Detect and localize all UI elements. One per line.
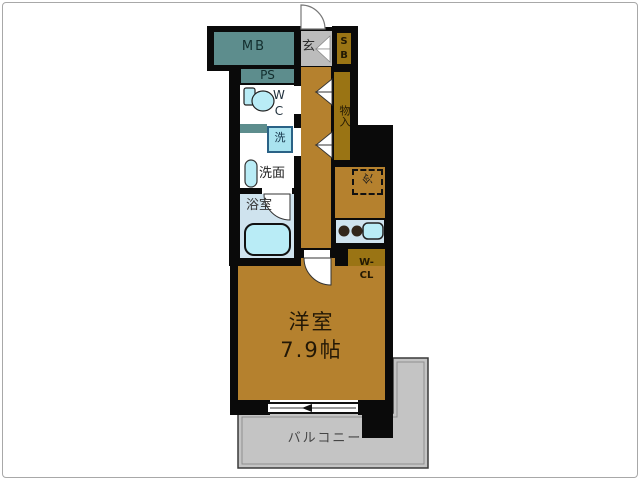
window-arrow-icon — [302, 404, 312, 412]
fixtures-layer — [0, 0, 640, 480]
toilet-bowl — [252, 91, 274, 111]
storage-door-icon — [316, 145, 332, 158]
entry-closet-door-icon — [316, 36, 330, 49]
label-fridge-text: 冷 — [362, 172, 373, 184]
bathtub — [245, 224, 290, 255]
stove-burner — [339, 226, 350, 237]
label-meter-box: MB — [214, 40, 294, 54]
label-shoe-box: S B — [337, 35, 351, 63]
label-entrance: 玄 — [302, 40, 315, 54]
sink — [245, 160, 257, 187]
label-storage: 物入 — [334, 76, 350, 156]
main-room-door-swing — [304, 258, 331, 285]
label-toilet: W C — [273, 88, 285, 119]
floor-plan-canvas: MB PS 玄 S B W C 洗 洗面 浴室 物入 冷 W- CL 洋室 7.… — [0, 0, 640, 480]
label-fridge: 冷 — [352, 172, 383, 184]
entry-closet-door-icon — [316, 49, 330, 62]
label-bathroom: 浴室 — [246, 199, 272, 213]
stove-burner — [352, 226, 363, 237]
storage-door-icon — [316, 79, 332, 92]
kitchen-sink — [363, 223, 383, 239]
label-balcony: バルコニー — [250, 432, 400, 446]
label-pipe-space: PS — [241, 69, 294, 82]
label-walk-in-closet: W- CL — [348, 257, 385, 282]
entrance-door-swing — [301, 5, 325, 29]
storage-door-icon — [316, 92, 332, 105]
storage-door-icon — [316, 132, 332, 145]
label-washing-machine: 洗 — [267, 132, 293, 144]
label-main-room: 洋室 7.9帖 — [238, 308, 385, 365]
label-washroom: 洗面 — [259, 167, 285, 181]
